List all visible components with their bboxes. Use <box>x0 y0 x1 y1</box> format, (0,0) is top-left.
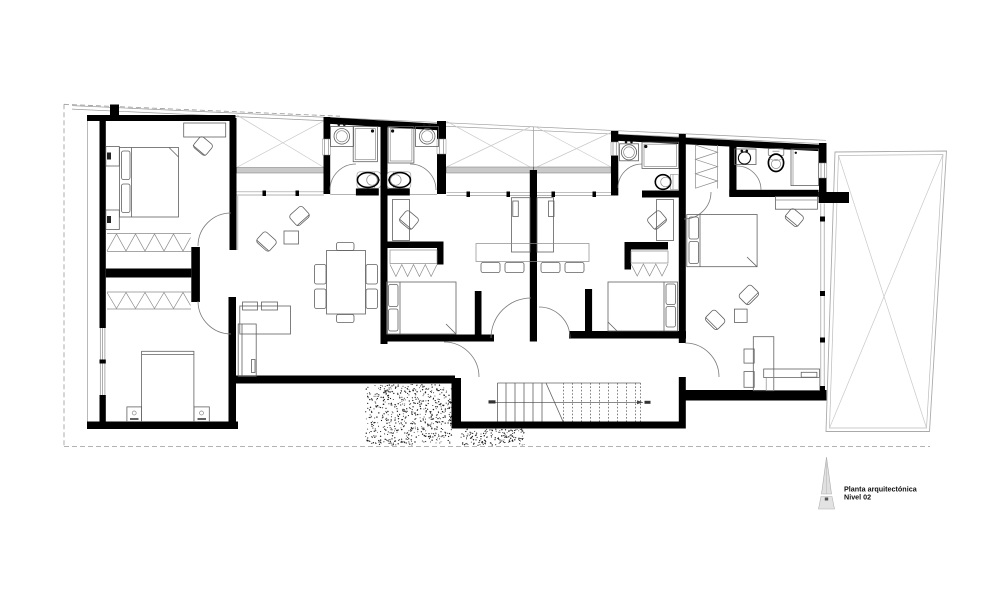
svg-text:Nivel 02: Nivel 02 <box>844 493 871 502</box>
